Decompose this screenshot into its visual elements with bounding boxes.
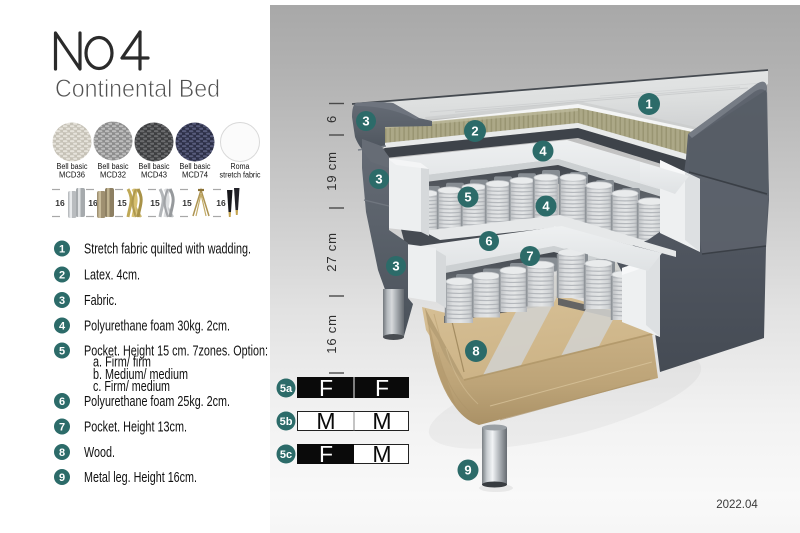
svg-text:2022.04: 2022.04: [716, 499, 758, 511]
svg-text:19 cm: 19 cm: [324, 151, 339, 190]
svg-text:2: 2: [471, 124, 478, 139]
svg-text:4: 4: [539, 144, 547, 159]
svg-text:8: 8: [59, 447, 65, 459]
svg-text:MCD74: MCD74: [182, 171, 209, 180]
svg-text:3: 3: [392, 259, 399, 274]
svg-text:Wood.: Wood.: [84, 445, 115, 461]
svg-text:7: 7: [59, 421, 65, 433]
svg-text:1: 1: [645, 97, 652, 112]
svg-text:Fabric.: Fabric.: [84, 293, 117, 309]
svg-text:MCD32: MCD32: [100, 171, 126, 180]
svg-text:Pocket. Height 13cm.: Pocket. Height 13cm.: [84, 420, 187, 436]
svg-text:16: 16: [88, 198, 98, 208]
svg-text:5: 5: [59, 345, 65, 357]
svg-text:F: F: [375, 375, 389, 401]
svg-text:M: M: [372, 408, 391, 434]
svg-text:F: F: [319, 441, 333, 467]
svg-text:15: 15: [150, 198, 160, 208]
svg-text:8: 8: [472, 344, 479, 359]
svg-text:6: 6: [59, 396, 65, 408]
svg-text:Continental Bed: Continental Bed: [55, 75, 220, 103]
svg-text:M: M: [372, 441, 391, 467]
svg-text:5c: 5c: [280, 449, 292, 461]
svg-text:6: 6: [485, 234, 492, 249]
svg-text:Polyurethane foam 30kg. 2cm.: Polyurethane foam 30kg. 2cm.: [84, 319, 230, 335]
svg-text:7: 7: [526, 249, 533, 264]
svg-text:MCD43: MCD43: [141, 171, 167, 180]
svg-text:9: 9: [464, 463, 471, 478]
svg-text:5a: 5a: [280, 383, 293, 395]
svg-text:stretch fabric: stretch fabric: [220, 171, 261, 180]
svg-text:6: 6: [324, 115, 339, 123]
svg-text:5b: 5b: [280, 416, 293, 428]
svg-text:16 cm: 16 cm: [324, 314, 339, 353]
svg-text:15: 15: [117, 198, 127, 208]
svg-text:5: 5: [464, 190, 471, 205]
svg-text:27 cm: 27 cm: [324, 232, 339, 271]
svg-text:3: 3: [375, 172, 382, 187]
svg-text:MCD36: MCD36: [59, 171, 85, 180]
svg-text:Polyurethane foam 25kg. 2cm.: Polyurethane foam 25kg. 2cm.: [84, 394, 230, 410]
svg-text:4: 4: [542, 199, 550, 214]
svg-text:4: 4: [59, 320, 66, 332]
svg-text:Latex. 4cm.: Latex. 4cm.: [84, 268, 140, 284]
svg-text:Stretch fabric quilted with wa: Stretch fabric quilted with wadding.: [84, 242, 251, 258]
svg-text:F: F: [319, 375, 333, 401]
svg-text:3: 3: [362, 114, 369, 129]
svg-text:3: 3: [59, 295, 65, 307]
svg-text:1: 1: [59, 243, 65, 255]
svg-text:M: M: [316, 408, 335, 434]
svg-text:16: 16: [216, 198, 226, 208]
svg-text:c. Firm/ medium: c. Firm/ medium: [93, 379, 170, 395]
svg-text:16: 16: [55, 198, 65, 208]
svg-text:15: 15: [182, 198, 192, 208]
svg-text:2: 2: [59, 269, 65, 281]
svg-text:Metal leg. Height 16cm.: Metal leg. Height 16cm.: [84, 470, 197, 486]
svg-text:9: 9: [59, 472, 65, 484]
